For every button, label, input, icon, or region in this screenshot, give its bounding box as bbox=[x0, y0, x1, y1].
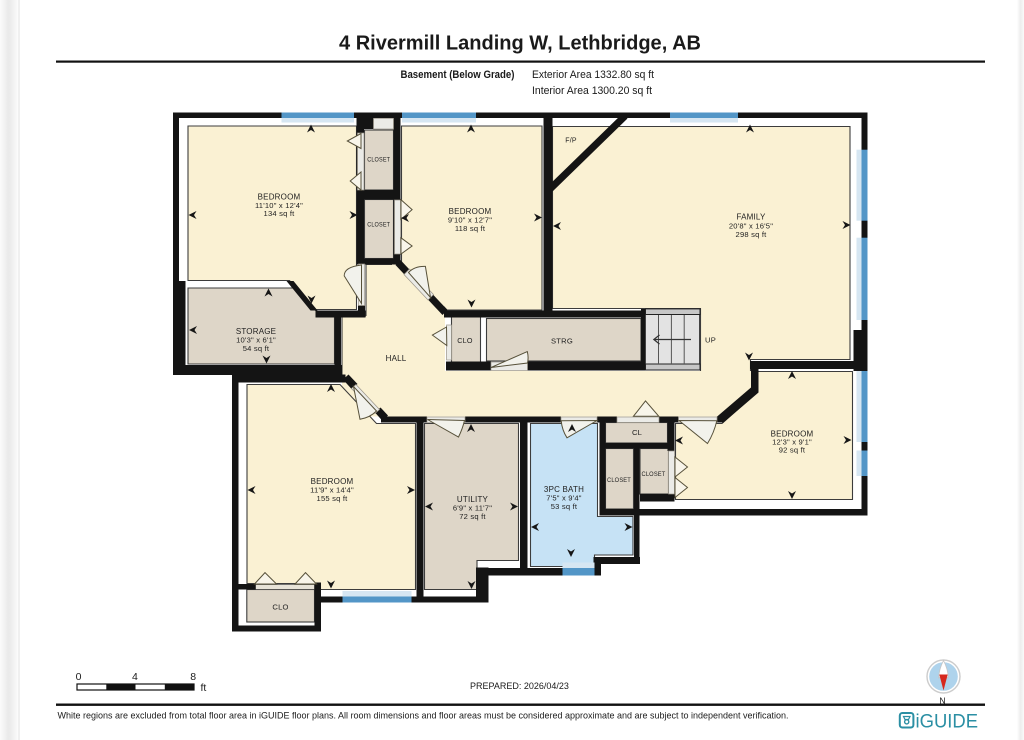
svg-text:UP: UP bbox=[705, 336, 716, 345]
svg-text:54 sq ft: 54 sq ft bbox=[243, 344, 270, 353]
svg-text:PREPARED: 2026/04/23: PREPARED: 2026/04/23 bbox=[470, 681, 569, 691]
svg-text:iGUIDE: iGUIDE bbox=[916, 712, 979, 733]
svg-text:CL: CL bbox=[632, 428, 642, 437]
svg-text:CLOSET: CLOSET bbox=[367, 222, 390, 229]
svg-text:118 sq ft: 118 sq ft bbox=[455, 224, 486, 233]
svg-text:Interior Area 1300.20 sq ft: Interior Area 1300.20 sq ft bbox=[532, 85, 652, 97]
svg-text:53 sq ft: 53 sq ft bbox=[551, 502, 578, 511]
svg-text:ft: ft bbox=[201, 682, 207, 694]
svg-text:CLO: CLO bbox=[457, 336, 473, 345]
svg-text:155 sq ft: 155 sq ft bbox=[317, 494, 349, 503]
svg-text:CLOSET: CLOSET bbox=[642, 471, 666, 478]
svg-text:STRG: STRG bbox=[551, 337, 573, 346]
svg-text:0: 0 bbox=[76, 671, 82, 683]
svg-text:HALL: HALL bbox=[386, 354, 407, 363]
svg-text:F/P: F/P bbox=[565, 138, 577, 145]
svg-text:FAMILY: FAMILY bbox=[736, 213, 766, 222]
svg-text:4 Rivermill Landing W, Lethbri: 4 Rivermill Landing W, Lethbridge, AB bbox=[339, 33, 701, 55]
svg-text:72 sq ft: 72 sq ft bbox=[459, 512, 486, 521]
svg-text:CLO: CLO bbox=[272, 603, 288, 612]
svg-text:CLOSET: CLOSET bbox=[607, 477, 631, 484]
svg-text:4: 4 bbox=[132, 671, 138, 683]
svg-text:134 sq ft: 134 sq ft bbox=[264, 209, 296, 218]
svg-text:CLOSET: CLOSET bbox=[367, 157, 390, 164]
svg-text:8: 8 bbox=[190, 671, 196, 683]
svg-text:92 sq ft: 92 sq ft bbox=[779, 446, 806, 455]
svg-text:298 sq ft: 298 sq ft bbox=[736, 230, 768, 239]
svg-text:Exterior Area 1332.80 sq ft: Exterior Area 1332.80 sq ft bbox=[532, 69, 654, 81]
svg-text:Basement (Below Grade): Basement (Below Grade) bbox=[401, 69, 515, 81]
svg-text:White regions are excluded fro: White regions are excluded from total fl… bbox=[58, 711, 789, 721]
